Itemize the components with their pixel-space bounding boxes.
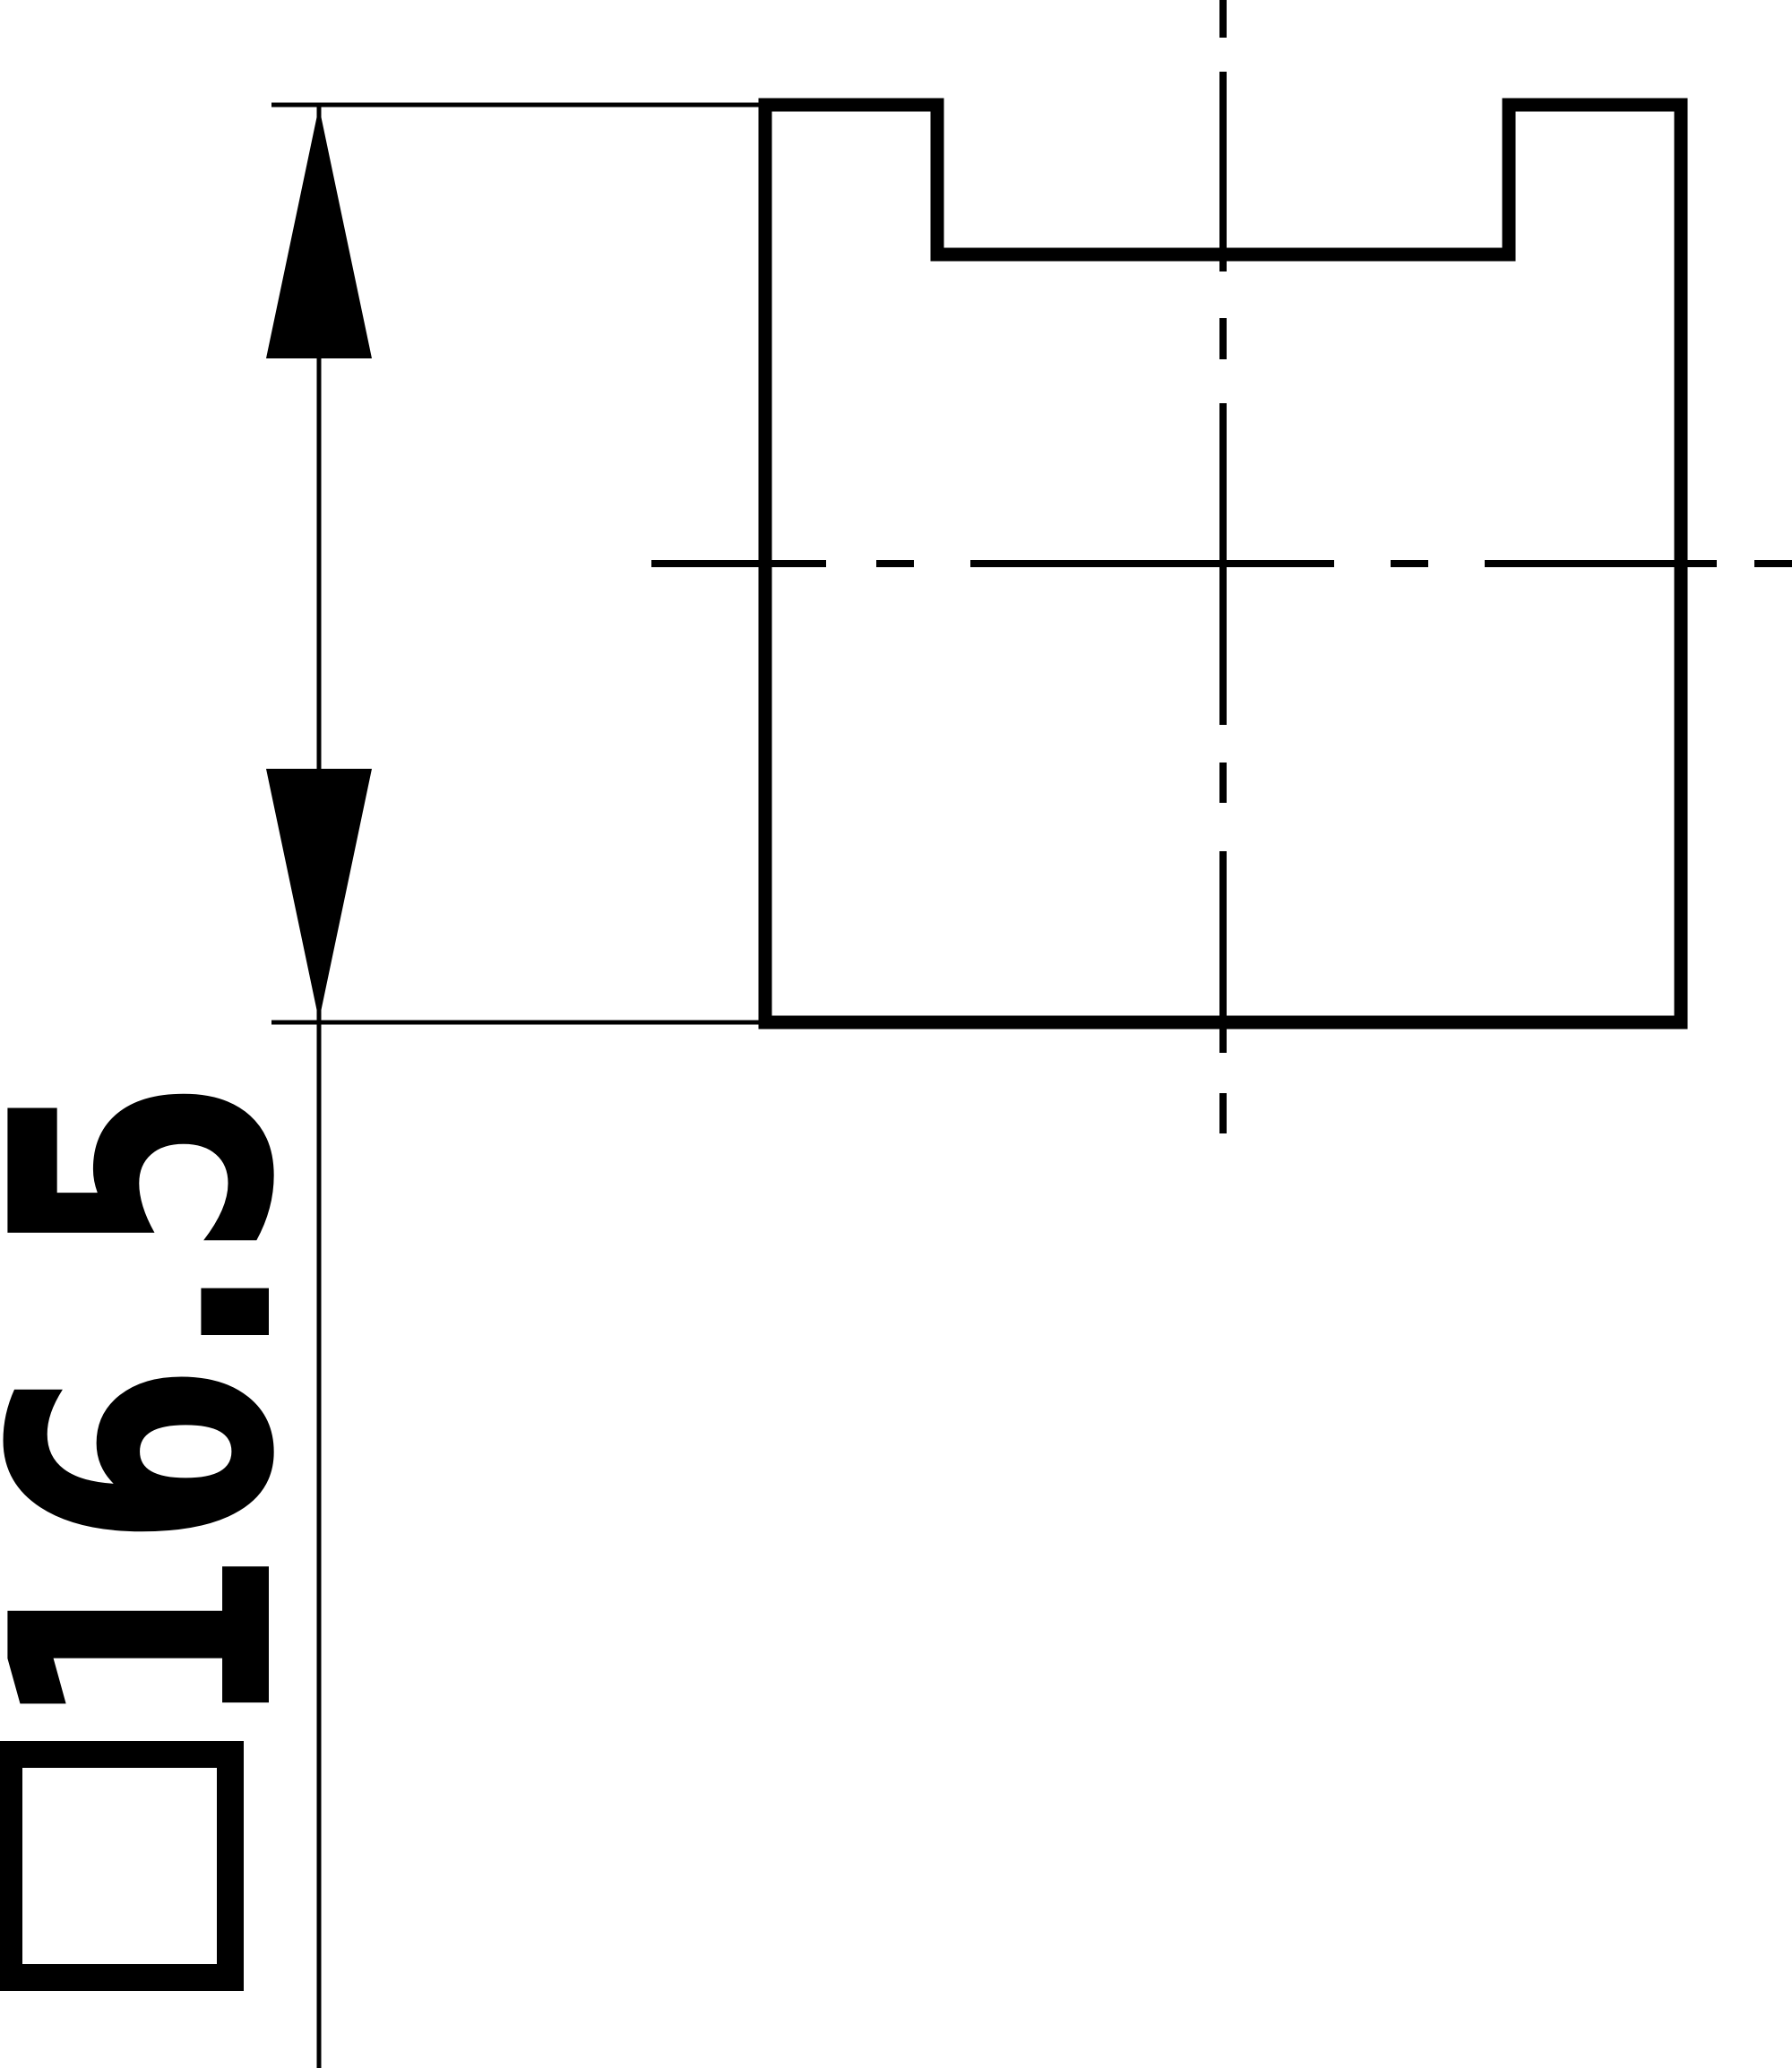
technical-drawing-canvas: 16.5: [0, 0, 1792, 2068]
drawing-background: [0, 0, 1792, 2068]
drawing-svg: 16.5: [0, 0, 1792, 2068]
dimension-value-text: 16.5: [0, 1075, 354, 1734]
